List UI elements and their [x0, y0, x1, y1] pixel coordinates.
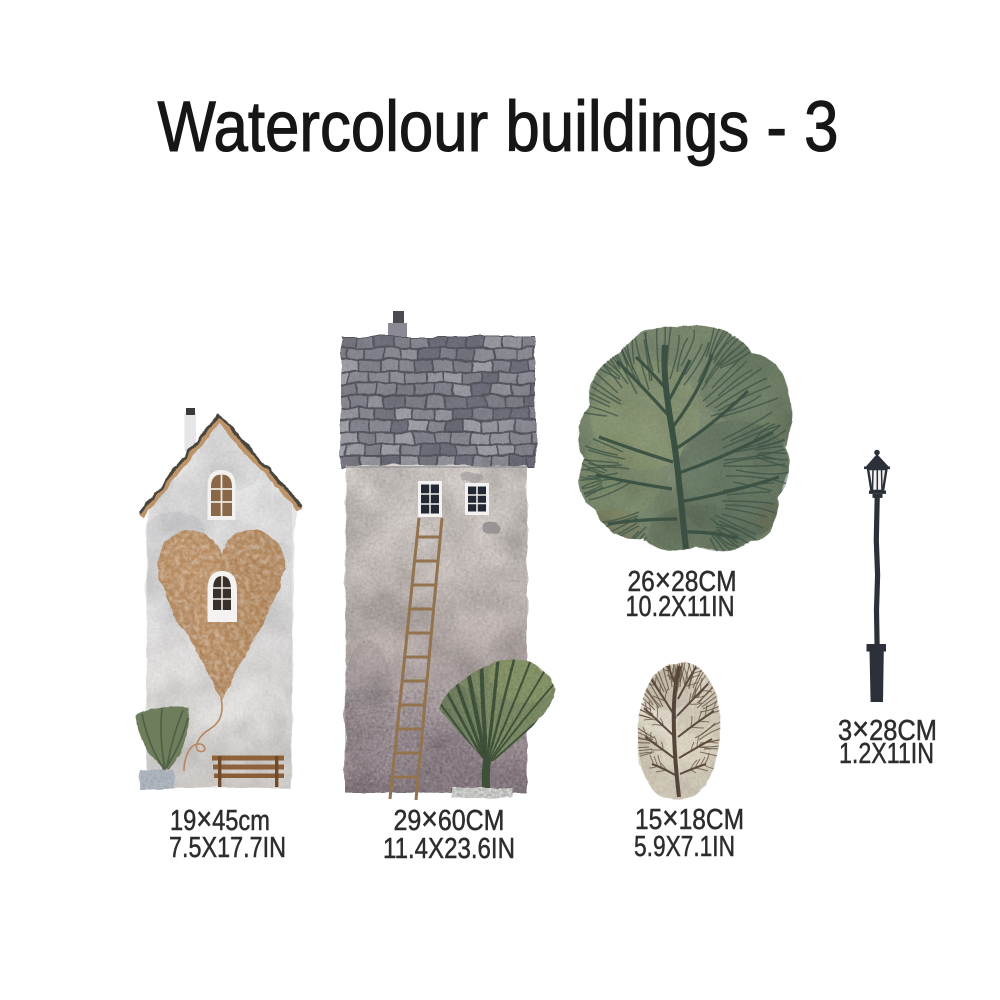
svg-text:1.2X11IN: 1.2X11IN [839, 738, 934, 770]
svg-text:Watercolour buildings - 3: Watercolour buildings - 3 [158, 88, 839, 167]
svg-text:10.2X11IN: 10.2X11IN [626, 591, 735, 623]
svg-text:7.5X17.7IN: 7.5X17.7IN [169, 832, 286, 864]
svg-text:11.4X23.6IN: 11.4X23.6IN [383, 833, 515, 865]
svg-text:5.9X7.1IN: 5.9X7.1IN [634, 831, 735, 863]
svg-text:29×60CM: 29×60CM [394, 800, 505, 837]
